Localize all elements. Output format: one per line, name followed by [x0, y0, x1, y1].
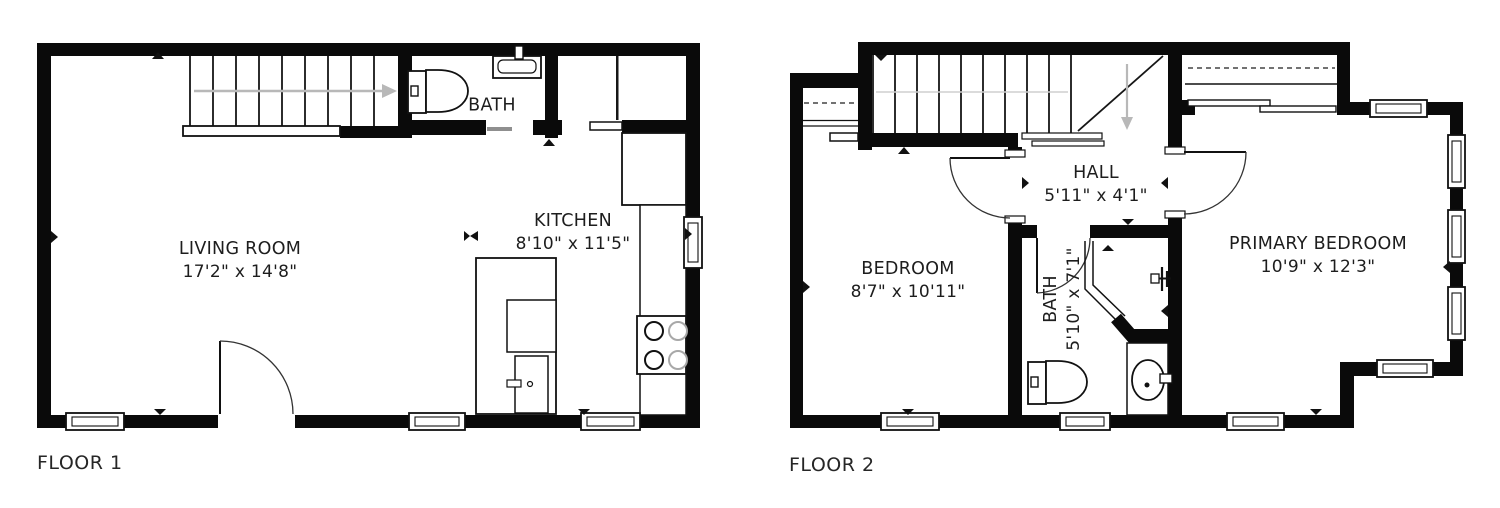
room-dims: 17'2" x 14'8": [179, 261, 301, 284]
window-icon: [881, 413, 939, 430]
light-fixture-icon: [464, 231, 478, 241]
shower-icon: [1085, 241, 1171, 341]
closet-slider-door: [830, 133, 858, 141]
living-room-label: LIVING ROOM 17'2" x 14'8": [179, 238, 301, 284]
door-swing-icon: [1184, 152, 1246, 214]
window-icon: [684, 217, 702, 268]
primary-bedroom-label: PRIMARY BEDROOM 10'9" x 12'3": [1229, 233, 1407, 279]
window-icon: [1448, 210, 1465, 263]
toilet-icon: [1028, 361, 1087, 404]
primary-closet: [1185, 68, 1337, 112]
floor1-kitchen: [464, 133, 687, 415]
stair-direction-arrow: [382, 84, 397, 98]
floor1-entry-area: [590, 56, 622, 130]
room-name: LIVING ROOM: [179, 238, 301, 261]
window-icon: [1227, 413, 1284, 430]
floor2-caption: FLOOR 2: [789, 454, 875, 476]
door-swing-icon: [220, 341, 293, 414]
room-dims: 8'10" x 11'5": [516, 233, 631, 256]
window-icon: [1060, 413, 1110, 430]
door-swing-icon: [950, 158, 1010, 218]
bedroom-closet: [803, 103, 858, 141]
room-dims: 10'9" x 12'3": [1229, 256, 1407, 279]
stairs-icon: [183, 56, 397, 136]
entry-slider-door: [590, 122, 622, 130]
room-name: BATH: [1040, 247, 1063, 351]
kitchen-counter: [640, 205, 686, 415]
floor1-bath-label: BATH: [468, 95, 516, 118]
kitchen-label: KITCHEN 8'10" x 11'5": [516, 210, 631, 256]
stairs-icon: [873, 55, 1163, 146]
stair-direction-arrow: [1121, 117, 1133, 130]
window-icon: [409, 413, 465, 430]
closet-slider-door: [1188, 100, 1270, 106]
window-icon: [1448, 135, 1465, 188]
window-icon: [581, 413, 640, 430]
room-name: HALL: [1044, 162, 1148, 185]
toilet-icon: [408, 70, 468, 113]
room-name: PRIMARY BEDROOM: [1229, 233, 1407, 256]
closet-slider-door: [1260, 106, 1336, 112]
window-icon: [1370, 100, 1427, 117]
floorplan-canvas: LIVING ROOM 17'2" x 14'8" KITCHEN 8'10" …: [0, 0, 1500, 508]
floor1-caption: FLOOR 1: [37, 452, 123, 474]
window-icon: [1448, 287, 1465, 340]
bath-pocket-door: [487, 127, 512, 131]
room-dims: 5'10" x 7'1": [1063, 247, 1086, 351]
window-icon: [1377, 360, 1433, 377]
sink-icon: [1127, 343, 1172, 415]
floor2-bath-label: BATH 5'10" x 7'1": [1040, 247, 1086, 351]
window-icon: [66, 413, 124, 430]
stove-icon: [637, 316, 687, 374]
kitchen-island: [476, 258, 556, 414]
room-dims: 8'7" x 10'11": [851, 281, 966, 304]
room-name: BEDROOM: [851, 258, 966, 281]
hall-label: HALL 5'11" x 4'1": [1044, 162, 1148, 208]
island-sink: [507, 300, 556, 352]
entry-door: [218, 341, 295, 428]
room-name: BATH: [468, 95, 516, 118]
room-name: KITCHEN: [516, 210, 631, 233]
room-dims: 5'11" x 4'1": [1044, 185, 1148, 208]
bedroom-label: BEDROOM 8'7" x 10'11": [851, 258, 966, 304]
floor1-bath-fixtures: [408, 46, 541, 131]
fridge-icon: [622, 133, 686, 205]
